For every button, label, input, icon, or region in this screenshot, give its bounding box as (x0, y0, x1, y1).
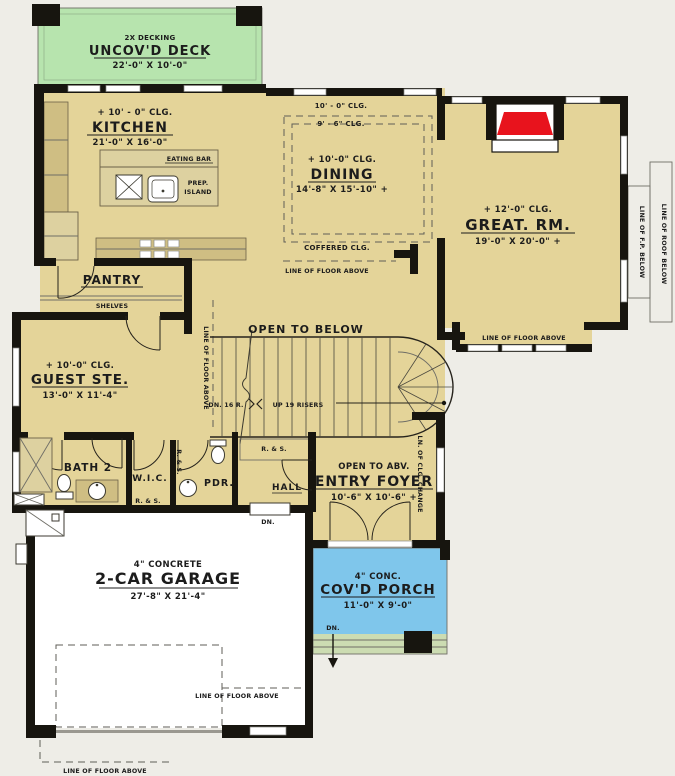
porch-note: 4" CONC. (355, 572, 402, 582)
garage-door (56, 730, 222, 733)
porch-column (404, 631, 432, 653)
powder-title: PDR. (204, 478, 234, 489)
deck-post-left (32, 4, 60, 26)
wic-title: W.I.C. (132, 474, 167, 484)
wic-rs-label: R. & S. (135, 498, 161, 505)
great-clg: + 12'-0" CLG. (484, 205, 552, 215)
bath2-title: BATH 2 (64, 462, 112, 474)
floor-plan: 2X DECKING UNCOV'D DECK 22'-0" X 10'-0" … (0, 0, 675, 776)
kitchen-title: KITCHEN (92, 120, 168, 136)
dining-clg-b: 9' - 6" CLG. (317, 120, 364, 128)
entry-dims: 10'-6" X 10'-6" + (331, 493, 417, 503)
dining-clg-a: 10' - 0" CLG. (315, 102, 368, 110)
great-title: GREAT. RM. (465, 216, 571, 234)
entry-threshold (328, 541, 412, 547)
kitchen-clg: + 10' - 0" CLG. (97, 108, 172, 118)
floor-above-label-dining: LINE OF FLOOR ABOVE (285, 268, 369, 275)
fireplace (486, 96, 564, 152)
powder-toilet (212, 447, 225, 464)
dining-title: DINING (311, 167, 374, 183)
floor-above-label-bottom: LINE OF FLOOR ABOVE (63, 768, 147, 775)
svg-text:ISLAND: ISLAND (184, 189, 211, 196)
pantry-title: PANTRY (83, 273, 141, 287)
fp-below-label: LINE OF F.P. BELOW (638, 206, 645, 279)
guest-clg: + 10'-0" CLG. (46, 361, 114, 371)
floor-above-vertical: LINE OF FLOOR ABOVE (202, 326, 209, 410)
garage-step (250, 503, 290, 515)
stairs-up-label: UP 19 RISERS (273, 402, 324, 409)
kitchen-dims: 21'-0" X 16'-0" (92, 138, 167, 148)
floor-above-label-bay: LINE OF FLOOR ABOVE (482, 335, 566, 342)
prep-island-label: PREP. (188, 180, 209, 187)
hearth (492, 140, 558, 152)
floor-above-label-garage: LINE OF FLOOR ABOVE (195, 693, 279, 700)
deck-dims: 22'-0" X 10'-0" (112, 61, 187, 71)
guest-dims: 13'-0" X 11'-4" (42, 391, 117, 401)
fireplace-firebox (497, 112, 553, 135)
entry-note: OPEN TO ABV. (338, 462, 410, 472)
hall-title: HALL (272, 483, 302, 493)
roof-below-label: LINE OF ROOF BELOW (660, 204, 667, 285)
bath2-toilet (58, 475, 71, 492)
deck-note: 2X DECKING (124, 34, 175, 42)
clg-change-label: LN. OF CLG. CHANGE (416, 435, 423, 512)
deck-title: UNCOV'D DECK (89, 44, 211, 59)
garage-dims: 27'-8" X 21'-4" (130, 592, 205, 602)
closet-rs-label: R. & S. (261, 446, 287, 453)
porch-dims: 11'-0" X 9'-0" (344, 601, 413, 611)
eating-bar-label: EATING BAR (167, 156, 211, 163)
garage-title: 2-CAR GARAGE (95, 569, 241, 588)
dining-dims: 14'-8" X 15'-10" + (296, 185, 388, 195)
guest-title: GUEST STE. (31, 372, 129, 388)
floor-above-garage-bottom (40, 740, 170, 762)
great-dims: 19'-0" X 20'-0" + (475, 237, 561, 247)
porch-title: COV'D PORCH (320, 582, 435, 598)
utility-box (16, 544, 27, 564)
garage-dn-label: DN. (261, 519, 275, 526)
porch-dn-label: DN. (326, 625, 340, 632)
wic-rs-vertical: R. & S. (175, 449, 182, 475)
stairs-dn-label: DN. 16 R. (208, 402, 243, 409)
dining-clg: + 10'-0" CLG. (308, 155, 376, 165)
entry-title: ENTRY FOYER (315, 474, 433, 490)
floor-plan-drawing: 2X DECKING UNCOV'D DECK 22'-0" X 10'-0" … (0, 0, 675, 776)
faucet (162, 190, 165, 193)
open-below-label: OPEN TO BELOW (248, 323, 364, 336)
deck-post-right (236, 6, 262, 26)
coffered-label: COFFERED CLG. (304, 244, 370, 252)
shelves-label: SHELVES (96, 303, 129, 310)
left-counter (44, 102, 68, 212)
